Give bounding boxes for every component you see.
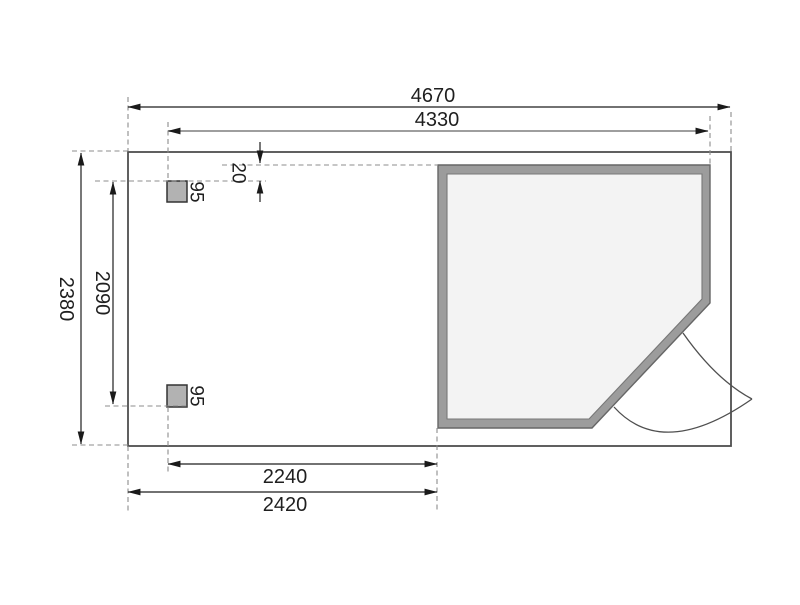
dim-label-house-width: 4330 xyxy=(415,109,460,131)
dim-label-overall-width: 4670 xyxy=(411,85,456,107)
dim-label-annex-post-width: 2240 xyxy=(263,466,308,488)
floor-plan-canvas: 4670 4330 2380 2090 20 95 95 2240 2420 xyxy=(0,0,800,600)
dim-label-post-size-top: 95 xyxy=(185,181,206,202)
dim-label-overall-depth: 2380 xyxy=(55,277,77,322)
post-bottom xyxy=(167,385,187,407)
floor-plan-drawing: 4670 4330 2380 2090 20 95 95 2240 2420 xyxy=(0,0,800,600)
dim-label-annex-width: 2420 xyxy=(263,494,308,516)
post-top xyxy=(167,181,187,202)
dim-label-post-size-bottom: 95 xyxy=(185,385,206,406)
dim-label-wall-gap: 20 xyxy=(227,162,248,183)
dim-label-post-spacing: 2090 xyxy=(91,271,113,316)
